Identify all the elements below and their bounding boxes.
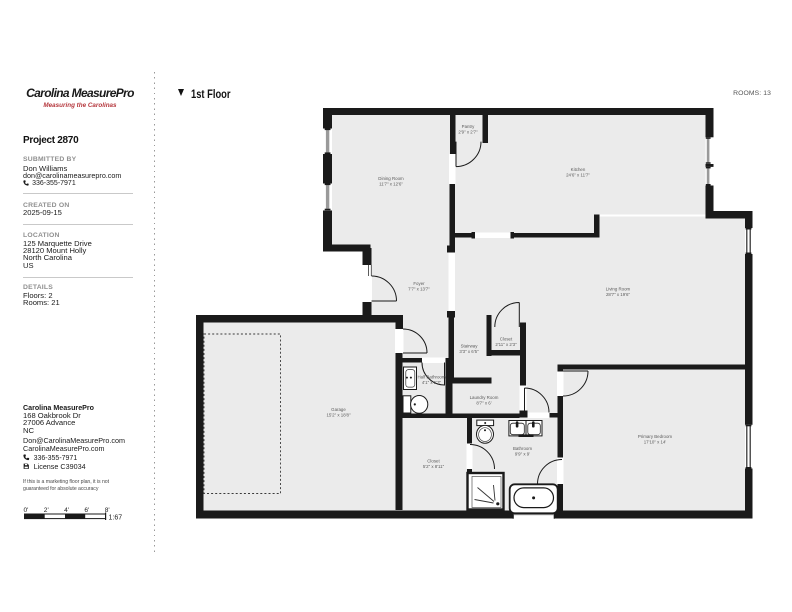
svg-text:5'2" x 8'11": 5'2" x 8'11": [423, 464, 445, 469]
svg-text:Foyer: Foyer: [413, 281, 425, 286]
svg-text:17'10" x 14': 17'10" x 14': [644, 440, 667, 445]
svg-text:Closet: Closet: [427, 459, 440, 464]
svg-text:2'9" x 2'7": 2'9" x 2'7": [458, 130, 478, 135]
svg-text:Living Room: Living Room: [606, 287, 631, 292]
svg-text:3'3" x 6'5": 3'3" x 6'5": [459, 349, 479, 354]
svg-text:8'7" x 6': 8'7" x 6': [476, 401, 491, 406]
svg-text:Stairway: Stairway: [461, 344, 479, 349]
svg-text:Garage: Garage: [331, 407, 346, 412]
svg-text:2'11" x 2'3": 2'11" x 2'3": [495, 342, 517, 347]
svg-text:Kitchen: Kitchen: [571, 167, 586, 172]
svg-text:7'7" x 13'7": 7'7" x 13'7": [408, 287, 430, 292]
svg-text:Primary Bedroom: Primary Bedroom: [638, 434, 673, 439]
svg-text:Dining Room: Dining Room: [378, 176, 404, 181]
svg-text:Laundry Room: Laundry Room: [470, 395, 499, 400]
svg-text:9'9" x 9': 9'9" x 9': [515, 452, 530, 457]
svg-text:15'2" x 18'8": 15'2" x 18'8": [326, 413, 351, 418]
svg-text:Half Bathroom: Half Bathroom: [417, 375, 445, 380]
svg-text:Closet: Closet: [500, 337, 513, 342]
svg-text:Pantry: Pantry: [462, 124, 475, 129]
svg-text:Bathroom: Bathroom: [513, 446, 532, 451]
svg-text:4'1" x 5'3": 4'1" x 5'3": [422, 380, 442, 385]
svg-text:11'7" x 12'6": 11'7" x 12'6": [379, 182, 403, 187]
svg-text:24'6" x 11'7": 24'6" x 11'7": [566, 173, 590, 178]
svg-text:28'7" x 19'6": 28'7" x 19'6": [606, 292, 631, 297]
